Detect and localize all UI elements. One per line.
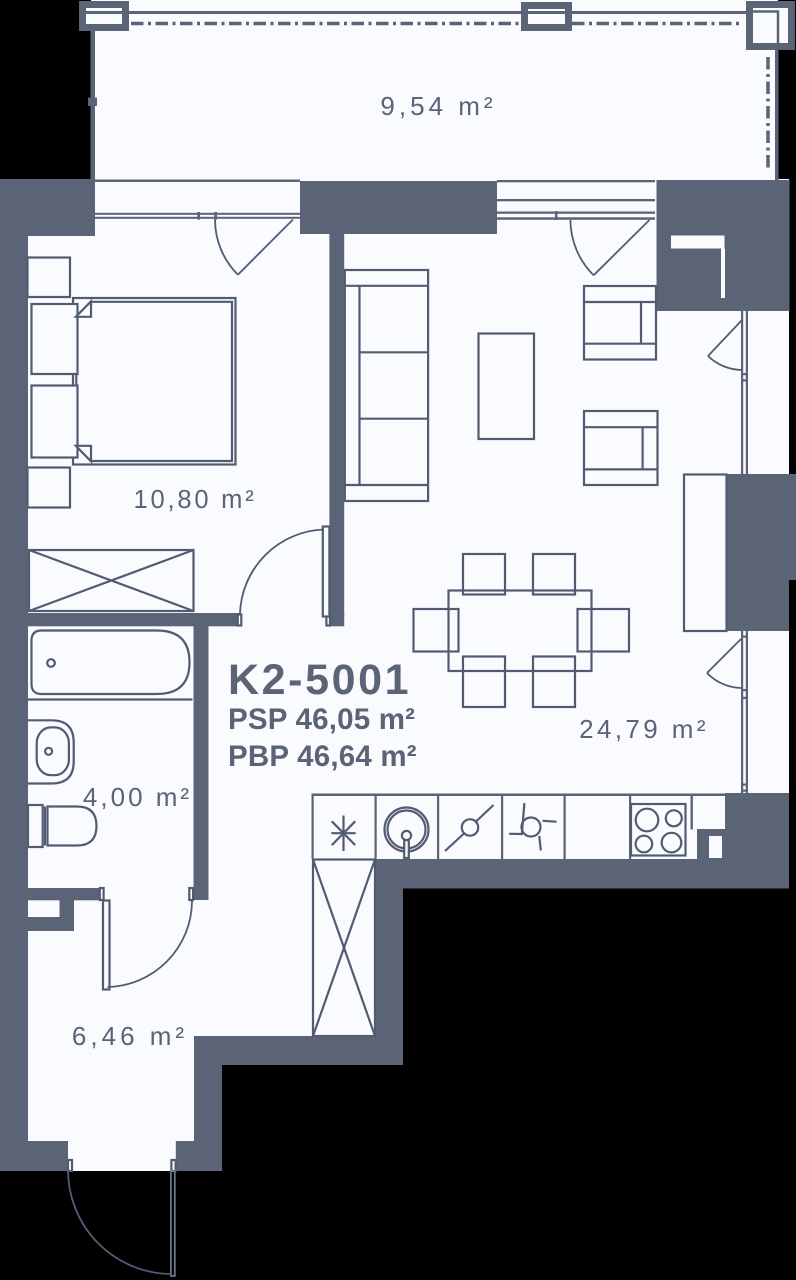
svg-text:4,00 m²: 4,00 m² [83, 782, 192, 812]
svg-text:24,79 m²: 24,79 m² [579, 714, 709, 744]
svg-text:PSP 46,05 m²: PSP 46,05 m² [228, 703, 415, 736]
svg-text:10,80 m²: 10,80 m² [133, 486, 256, 514]
svg-text:9,54 m²: 9,54 m² [380, 91, 496, 121]
svg-text:PBP 46,64 m²: PBP 46,64 m² [228, 740, 417, 773]
svg-text:K2-5001: K2-5001 [228, 656, 411, 704]
svg-text:6,46 m²: 6,46 m² [72, 1021, 188, 1051]
